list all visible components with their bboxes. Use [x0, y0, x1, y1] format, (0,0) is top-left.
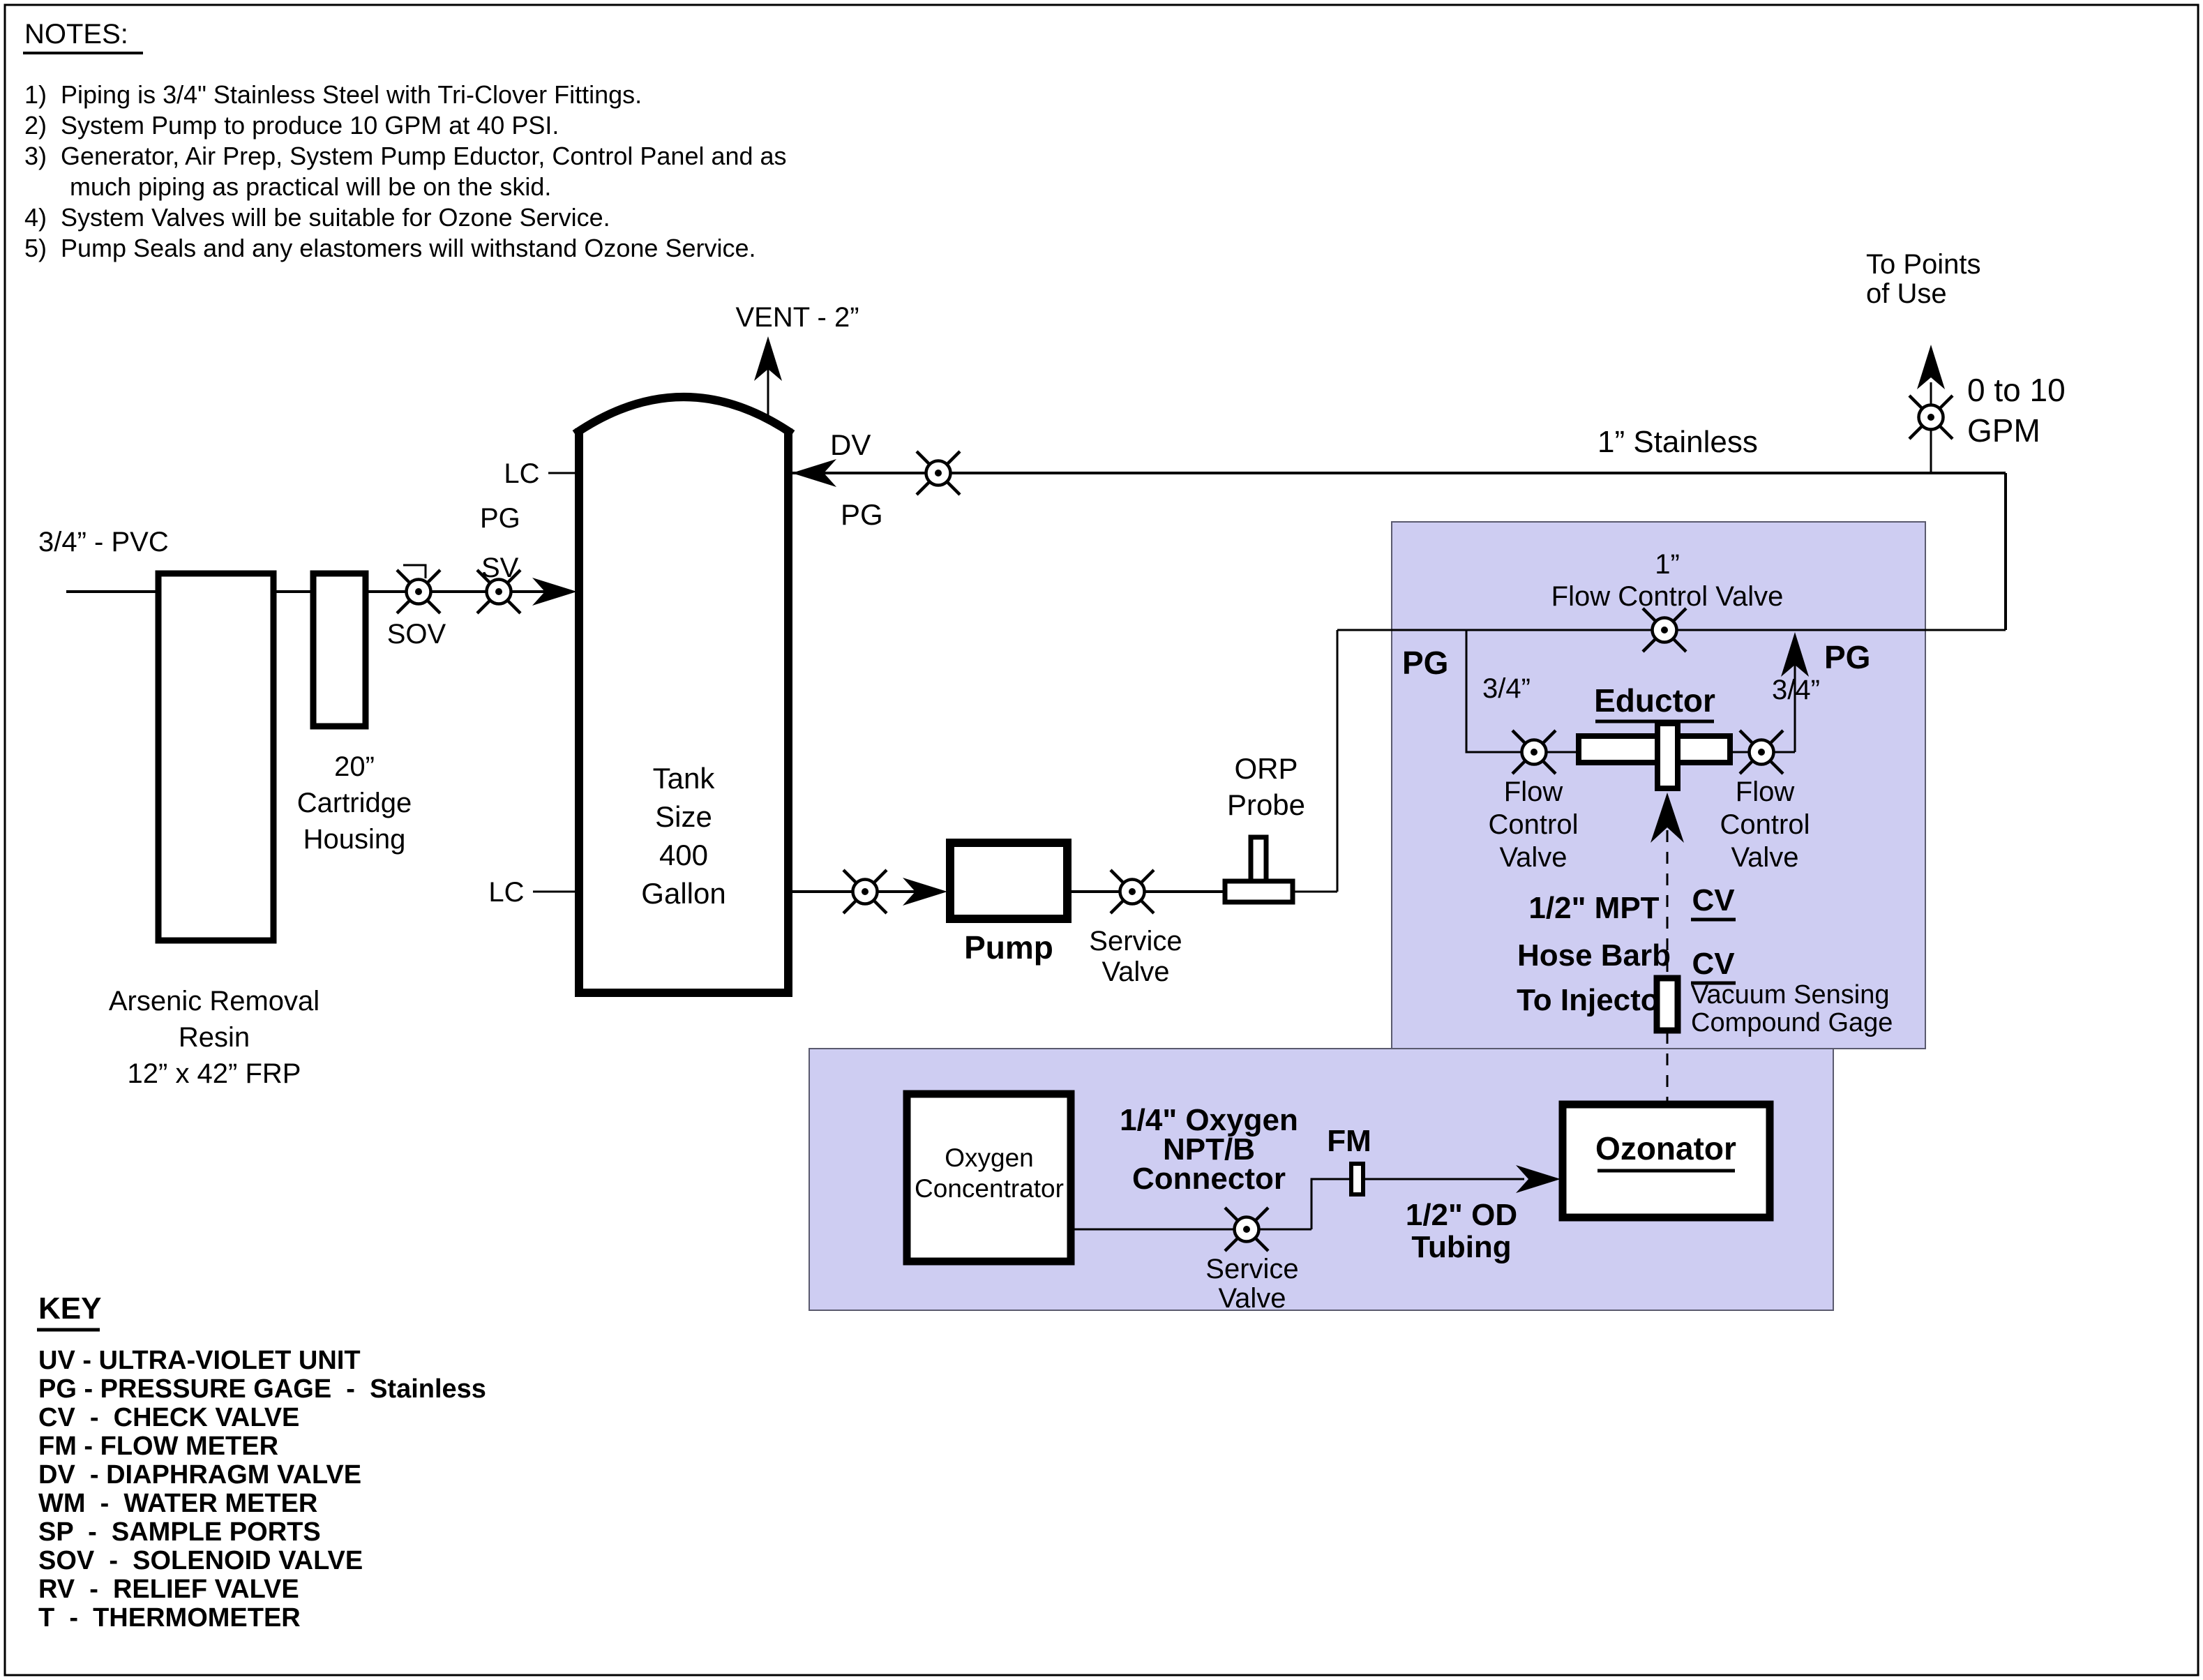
key-entry-t: T - THERMOMETER: [38, 1603, 301, 1633]
note-line-3: 3) Generator, Air Prep, System Pump Educ…: [24, 142, 787, 170]
key-entry-uv: UV - ULTRA-VIOLET UNIT: [38, 1346, 361, 1375]
note-line-3b: much piping as practical will be on the …: [70, 172, 551, 201]
vacuum-label-1: Vacuum Sensing: [1691, 980, 1889, 1010]
sov-flag-icon: [403, 565, 426, 578]
pg-tank-label: PG: [841, 498, 883, 531]
mpt-label-1: 1/2" MPT: [1528, 891, 1659, 925]
stainless-label: 1” Stainless: [1597, 425, 1758, 459]
note-line-4: 4) System Valves will be suitable for Oz…: [24, 203, 610, 232]
cartridge-housing: [313, 573, 366, 726]
mpt-label-3: To Injector: [1517, 983, 1671, 1017]
fcv-right-label-3: Valve: [1731, 842, 1798, 873]
orp-label-1: ORP: [1234, 752, 1298, 785]
gen-service-label-1: Service: [1205, 1254, 1298, 1284]
key-entry-cv: CV - CHECK VALVE: [38, 1403, 299, 1432]
notes-heading: NOTES:: [24, 19, 128, 50]
arsenic-vessel: [158, 573, 273, 940]
pg-left-label: PG: [1402, 645, 1448, 681]
tank-label-1: Tank: [653, 762, 716, 795]
cartridge-label-1: 20”: [334, 751, 375, 782]
key-entry-dv: DV - DIAPHRAGM VALVE: [38, 1460, 361, 1490]
note-line-1: 1) Piping is 3/4" Stainless Steel with T…: [24, 80, 642, 109]
to-points-label-2: of Use: [1866, 278, 1947, 309]
mpt-label-2: Hose Barb: [1517, 938, 1671, 973]
size-left-label: 3/4”: [1482, 673, 1531, 704]
tubing-label-2: Tubing: [1411, 1230, 1511, 1264]
fcv-main-label-1: 1”: [1655, 549, 1680, 580]
ozonator-label: Ozonator: [1595, 1130, 1736, 1167]
service-valve-label-2: Valve: [1101, 957, 1169, 987]
tubing-label-1: 1/2" OD: [1406, 1198, 1517, 1232]
fcv-right-label-1: Flow: [1736, 777, 1795, 807]
orp-probe-icon: [1225, 837, 1293, 902]
tank-label-4: Gallon: [641, 877, 725, 910]
key-entry-pg: PG - PRESSURE GAGE - Stainless: [38, 1374, 486, 1404]
fcv-left-label-3: Valve: [1499, 842, 1567, 873]
arsenic-label-2: Resin: [179, 1022, 250, 1053]
gpm-label-1: 0 to 10: [1967, 372, 2066, 408]
key-entry-rv: RV - RELIEF VALVE: [38, 1575, 299, 1604]
key-heading: KEY: [38, 1291, 101, 1326]
tank-label-2: Size: [655, 800, 712, 833]
key-entry-wm: WM - WATER METER: [38, 1489, 317, 1518]
cartridge-label-3: Housing: [303, 824, 406, 855]
fcv-left-label-2: Control: [1489, 809, 1579, 840]
to-points-label-1: To Points: [1866, 249, 1981, 280]
fcv-right-label-2: Control: [1720, 809, 1810, 840]
pg-inlet-label: PG: [480, 503, 520, 534]
arsenic-label-3: 12” x 42” FRP: [128, 1058, 301, 1089]
fcv-main-label-2: Flow Control Valve: [1551, 581, 1784, 612]
key-entry-fm: FM - FLOW METER: [38, 1432, 278, 1461]
vent-label: VENT - 2”: [735, 302, 859, 333]
dv-label: DV: [830, 428, 871, 461]
lc-top-label: LC: [504, 458, 539, 489]
note-line-2: 2) System Pump to produce 10 GPM at 40 P…: [24, 111, 559, 140]
oxygen-label-1: Oxygen: [945, 1143, 1034, 1172]
fm-icon: [1351, 1164, 1363, 1194]
tank-label-3: 400: [659, 839, 708, 871]
key-entry-sp: SP - SAMPLE PORTS: [38, 1517, 321, 1547]
pg-right-label: PG: [1824, 639, 1870, 675]
arsenic-label-1: Arsenic Removal: [109, 986, 319, 1017]
oxygen-label-2: Concentrator: [915, 1174, 1064, 1203]
npt-label-3: Connector: [1132, 1162, 1286, 1196]
vacuum-gage-icon: [1657, 978, 1678, 1030]
pump-box: [950, 843, 1067, 919]
gpm-label-2: GPM: [1967, 412, 2040, 449]
pvc-inlet-label: 3/4” - PVC: [38, 527, 169, 557]
service-valve-label-1: Service: [1089, 926, 1182, 957]
note-line-5: 5) Pump Seals and any elastomers will wi…: [24, 234, 755, 262]
cv-label-2: CV: [1692, 947, 1735, 981]
cartridge-label-2: Cartridge: [297, 788, 412, 818]
pump-label: Pump: [964, 929, 1053, 966]
orp-label-2: Probe: [1227, 788, 1305, 821]
sov-label: SOV: [387, 619, 446, 650]
eductor-label: Eductor: [1594, 682, 1715, 719]
fcv-left-label-1: Flow: [1504, 777, 1563, 807]
lc-bottom-label: LC: [488, 877, 524, 908]
vacuum-label-2: Compound Gage: [1691, 1008, 1893, 1037]
gen-service-label-2: Valve: [1218, 1283, 1286, 1314]
key-entry-sov: SOV - SOLENOID VALVE: [38, 1546, 363, 1575]
fm-label: FM: [1327, 1124, 1371, 1158]
pid-diagram: NOTES: 1) Piping is 3/4" Stainless Steel…: [0, 0, 2203, 1680]
cv-label-1: CV: [1692, 883, 1735, 917]
